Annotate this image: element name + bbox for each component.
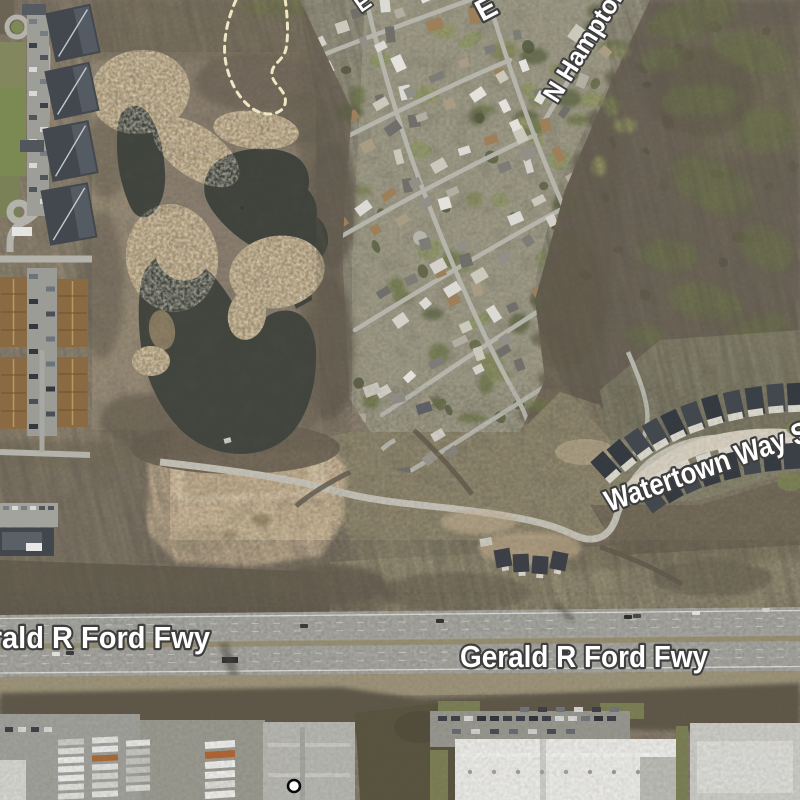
svg-text:Gerald R Ford Fwy: Gerald R Ford Fwy (460, 639, 709, 674)
svg-text:Gerald R Ford Fwy: Gerald R Ford Fwy (0, 620, 211, 655)
